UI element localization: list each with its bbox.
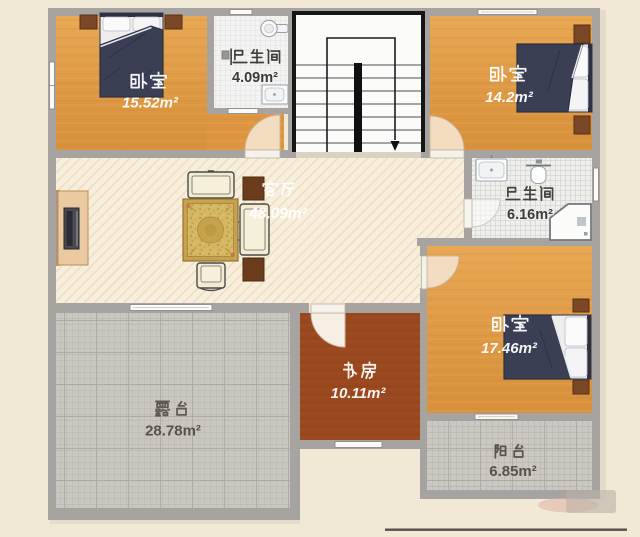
svg-text:6.85m²: 6.85m² (489, 463, 537, 480)
svg-text:14.2m²: 14.2m² (485, 89, 534, 106)
svg-text:17.46m²: 17.46m² (481, 340, 538, 357)
svg-text:48.09m²: 48.09m² (248, 206, 308, 223)
svg-text:10.11m²: 10.11m² (331, 385, 387, 402)
svg-text:6.16m²: 6.16m² (507, 207, 553, 223)
svg-text:28.78m²: 28.78m² (145, 423, 201, 440)
svg-text:4.09m²: 4.09m² (232, 70, 278, 86)
svg-text:15.52m²: 15.52m² (122, 95, 179, 112)
